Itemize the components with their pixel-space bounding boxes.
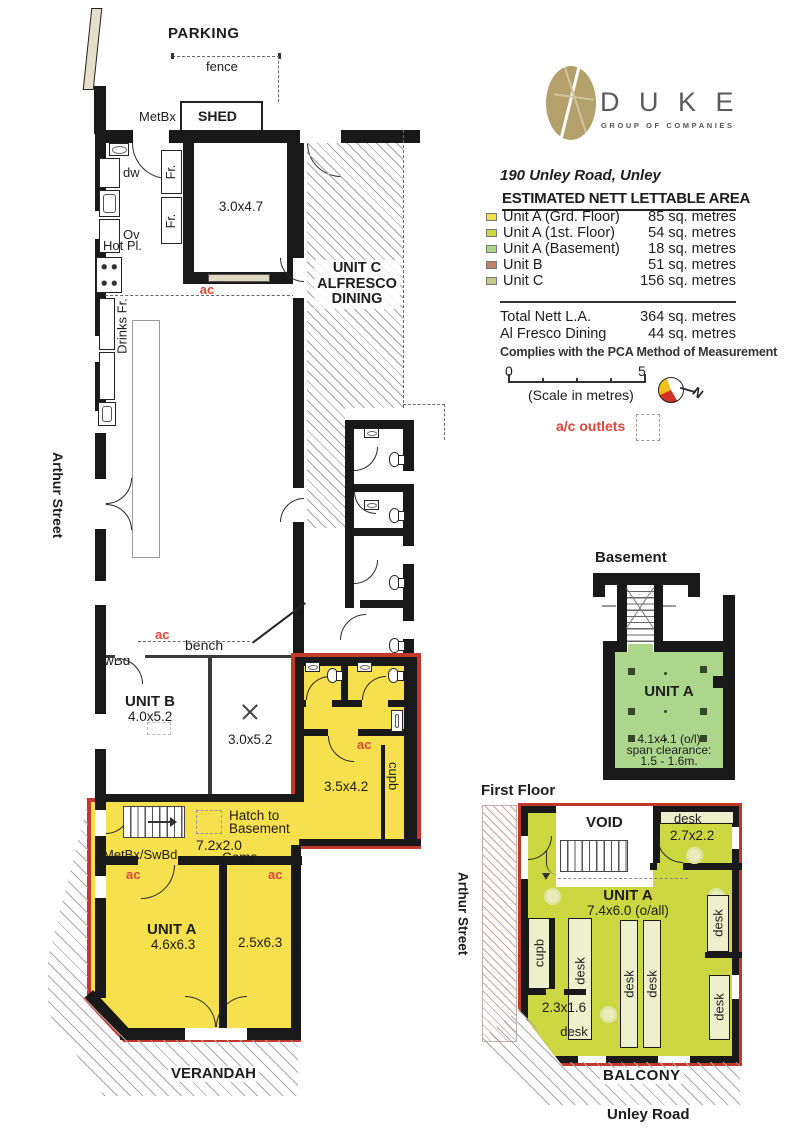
toilet-icon [389,575,400,590]
door-gap [305,130,341,143]
ac-label: ac [126,868,140,882]
brand-tagline: GROUP OF COMPANIES [601,122,735,130]
metbx-swbd-label: MetBx/SwBd [103,848,177,862]
unit-c-line2: ALFRESCO [317,277,397,293]
wall [219,865,227,1028]
counter [132,320,160,558]
swatch-unit-a-ground [486,213,497,221]
desk-label: desk [711,909,726,936]
sink-icon [391,710,403,732]
room-3542-dim: 3.5x4.2 [324,780,368,795]
ac-outlets-label: a/c outlets [556,419,625,434]
window [521,855,528,879]
door-arc [280,498,304,522]
address: 190 Unley Road, Unley [500,168,661,184]
desk-label: desk [622,970,637,997]
legend-row: Unit A (1st. Floor)54 sq. metres [486,225,736,241]
window [95,875,106,899]
door-gap [95,478,106,530]
wall [345,427,354,530]
wall [345,536,354,608]
door-gap [328,729,358,736]
unit-c-line3: DINING [317,292,397,308]
toilet-icon [388,668,399,683]
desk-label: desk [573,957,588,984]
post [628,735,635,742]
wall [713,676,723,688]
wall [603,641,615,780]
x-marker [240,702,260,722]
ac-label: ac [268,868,282,882]
fence-line [172,56,280,57]
hotplate-label: Hot Pl. [103,239,142,253]
dishwasher [99,158,120,188]
door-gap [578,1056,606,1063]
wall [705,952,742,958]
desk-label: desk [712,993,727,1020]
door-arc [106,504,132,530]
cool-room-dim: 3.0x4.7 [219,200,263,215]
unit-a-first-floor: VOID desk 2.7x2.2 UNIT A 7.4x6.0 (o/all)… [518,803,742,1066]
north-label: N [690,385,706,402]
hatch-label-line2: Basement [229,822,290,837]
wall [345,484,414,492]
desk-label: desk [674,812,701,826]
unit-c-line1: UNIT C [317,261,397,277]
toilet-icon [327,668,338,683]
door-gap [362,700,388,707]
wall [654,585,663,648]
scale-tick [576,378,578,382]
legend-value: 18 sq. metres [648,241,736,257]
ac-label: ac [357,738,371,752]
swatch-unit-c [486,277,497,285]
dashed-line [105,295,295,296]
door-arc [106,478,132,504]
street-strip [482,805,517,1042]
ac-outlet-key-box [636,414,660,441]
door-gap [95,810,106,836]
unit-a-ground-dim: 4.6x6.3 [151,938,195,953]
wall [550,918,555,989]
boundary-dashed [403,130,404,408]
scale-tick [542,378,544,382]
hatch-to-basement-box [196,810,222,834]
post [628,708,635,715]
door-arc [354,447,378,471]
wall [94,86,106,134]
arrow-head [542,873,550,880]
fridge-label: Fr. [164,214,178,229]
legend-label: Unit A (Grd. Floor) [503,209,620,225]
desk-label: desk [560,1025,587,1039]
cupb-label: cupb [386,762,400,790]
unit-b-label: UNIT B [125,694,175,710]
logo-slash [557,66,582,140]
floor-plan-sheet: D U K E GROUP OF COMPANIES 190 Unley Roa… [0,0,800,1131]
room-2722-dim: 2.7x2.2 [670,829,714,844]
door-arc [354,560,378,584]
stair-dash [663,605,676,607]
sink-icon [98,402,116,426]
post-dot [664,710,667,713]
scale-tick [508,374,510,382]
total-value: 44 sq. metres [648,326,736,342]
stairs-arrow-head [170,817,177,827]
stairs [560,840,628,872]
shed-label: SHED [198,109,237,124]
legend-value: 85 sq. metres [648,209,736,225]
window [732,975,739,999]
legend-row: Unit B51 sq. metres [486,257,736,273]
dashed-line [558,878,688,879]
mid-room-dim: 3.0x5.2 [228,733,272,748]
post-dot [664,672,667,675]
divider [500,301,736,303]
sink-icon [99,190,120,217]
legend-value: 51 sq. metres [648,257,736,273]
legend-label: Unit B [503,257,543,273]
unit-a-ground-label: UNIT A [147,922,196,938]
basin-icon [364,428,379,438]
total-row: Total Nett L.A.364 sq. metres [500,309,736,325]
post [700,735,707,742]
swatch-unit-b [486,261,497,269]
wall [360,600,414,608]
room-2563-dim: 2.5x6.3 [238,936,282,951]
basin-icon [357,662,372,672]
brand-name: D U K E [600,88,740,117]
door-gap [132,130,170,143]
toilet-icon [389,638,400,653]
void-label: VOID [586,815,623,831]
wall [723,595,735,780]
legend-label: Unit C [503,273,543,289]
boundary-dashed [444,404,445,440]
chair-icon [686,847,703,864]
scale-caption: (Scale in metres) [528,388,634,403]
chair-icon [600,1006,617,1023]
duke-logo [546,66,596,140]
wall [340,130,420,143]
wall [183,143,194,283]
door-gap [185,1028,247,1040]
wall [603,768,735,780]
desk-label: desk [645,970,660,997]
toilet-icon [389,508,400,523]
red-outline [417,653,421,849]
metbx-label: MetBx [139,110,176,124]
wall [688,573,700,597]
arthur-street-label-ff: Arthur Street [455,872,470,955]
wall [293,143,304,655]
wall [345,528,414,536]
basin-icon [364,500,379,510]
wall [95,130,300,143]
post [700,708,707,715]
fence-line [278,56,279,102]
wall [299,839,421,846]
wall [593,573,605,597]
stove-icon [96,257,122,293]
chair-icon [544,888,561,905]
basin-icon [109,143,129,156]
coms-label: Coms [222,851,257,866]
boundary-strip [83,8,103,90]
stairs-arrow [148,821,170,823]
drinks-fridge [99,298,115,350]
post [700,666,707,673]
post [628,668,635,675]
legend-label: Unit A (Basement) [503,241,620,257]
unley-road-label: Unley Road [607,1107,690,1123]
window [403,620,414,640]
basin-icon [305,662,320,672]
basement-clearance2: 1.5 - 1.6m. [640,755,697,768]
legend-value: 54 sq. metres [648,225,736,241]
door-gap [658,1056,690,1063]
toilet-icon [389,452,400,467]
room-2316-dim: 2.3x1.6 [542,1001,586,1016]
drinks-fridge [99,352,115,400]
legend-row: Unit A (Grd. Floor)85 sq. metres [486,209,736,225]
window [732,827,739,849]
legend-label: Unit A (1st. Floor) [503,225,615,241]
wall [95,794,302,802]
ac-label: ac [155,628,169,642]
window [95,713,106,750]
fence-tick [171,53,174,59]
stair-dash [602,605,616,607]
window [403,545,414,565]
basement-unit-label: UNIT A [644,684,693,700]
unit-a-first-dim: 7.4x6.0 (o/all) [587,904,669,919]
wall [208,658,212,798]
bench-label: bench [185,638,223,653]
scale-tick [644,374,646,382]
wall [404,657,417,845]
door-gap [657,863,683,870]
total-row: Al Fresco Dining44 sq. metres [500,326,736,342]
swatch-unit-a-first [486,229,497,237]
dashed-marker [147,722,171,735]
total-label: Total Nett L.A. [500,309,591,325]
door-gap [521,836,528,855]
door-arc [340,614,366,640]
door-arc [117,658,143,684]
dishwasher-label: dw [123,166,140,180]
wall [381,745,385,845]
north-compass-icon [658,377,684,403]
verandah-label: VERANDAH [168,1066,259,1082]
fence-label: fence [206,60,238,74]
unit-c-label: UNIT C ALFRESCO DINING [314,260,400,309]
cupb-label: cupb [532,939,547,967]
legend-row: Unit C156 sq. metres [486,273,736,289]
wall [345,420,414,429]
scale-tick [610,378,612,382]
arthur-street-label: Arthur Street [50,452,65,538]
wall [291,845,301,1038]
legend-value: 156 sq. metres [640,273,736,289]
wall [654,641,723,652]
cool-room-door [208,274,270,282]
boundary-dashed [403,404,445,405]
total-value: 364 sq. metres [640,309,736,325]
compliance-note: Complies with the PCA Method of Measurem… [500,346,777,360]
window [95,580,106,606]
legend-row: Unit A (Basement)18 sq. metres [486,241,736,257]
fridge-label: Fr. [164,165,178,180]
door-gap [306,700,332,707]
total-label: Al Fresco Dining [500,326,606,342]
unit-a-first-label: UNIT A [603,888,652,904]
wall [341,657,348,705]
basement-title: Basement [595,550,667,566]
swatch-unit-a-basement [486,245,497,253]
door-gap [546,989,564,995]
first-floor-title: First Floor [481,783,555,799]
parking-label: PARKING [168,26,240,42]
balcony-label: BALCONY [600,1068,684,1084]
drinks-fridge-label: Drinks Fr. [115,298,130,354]
wall [593,573,700,585]
